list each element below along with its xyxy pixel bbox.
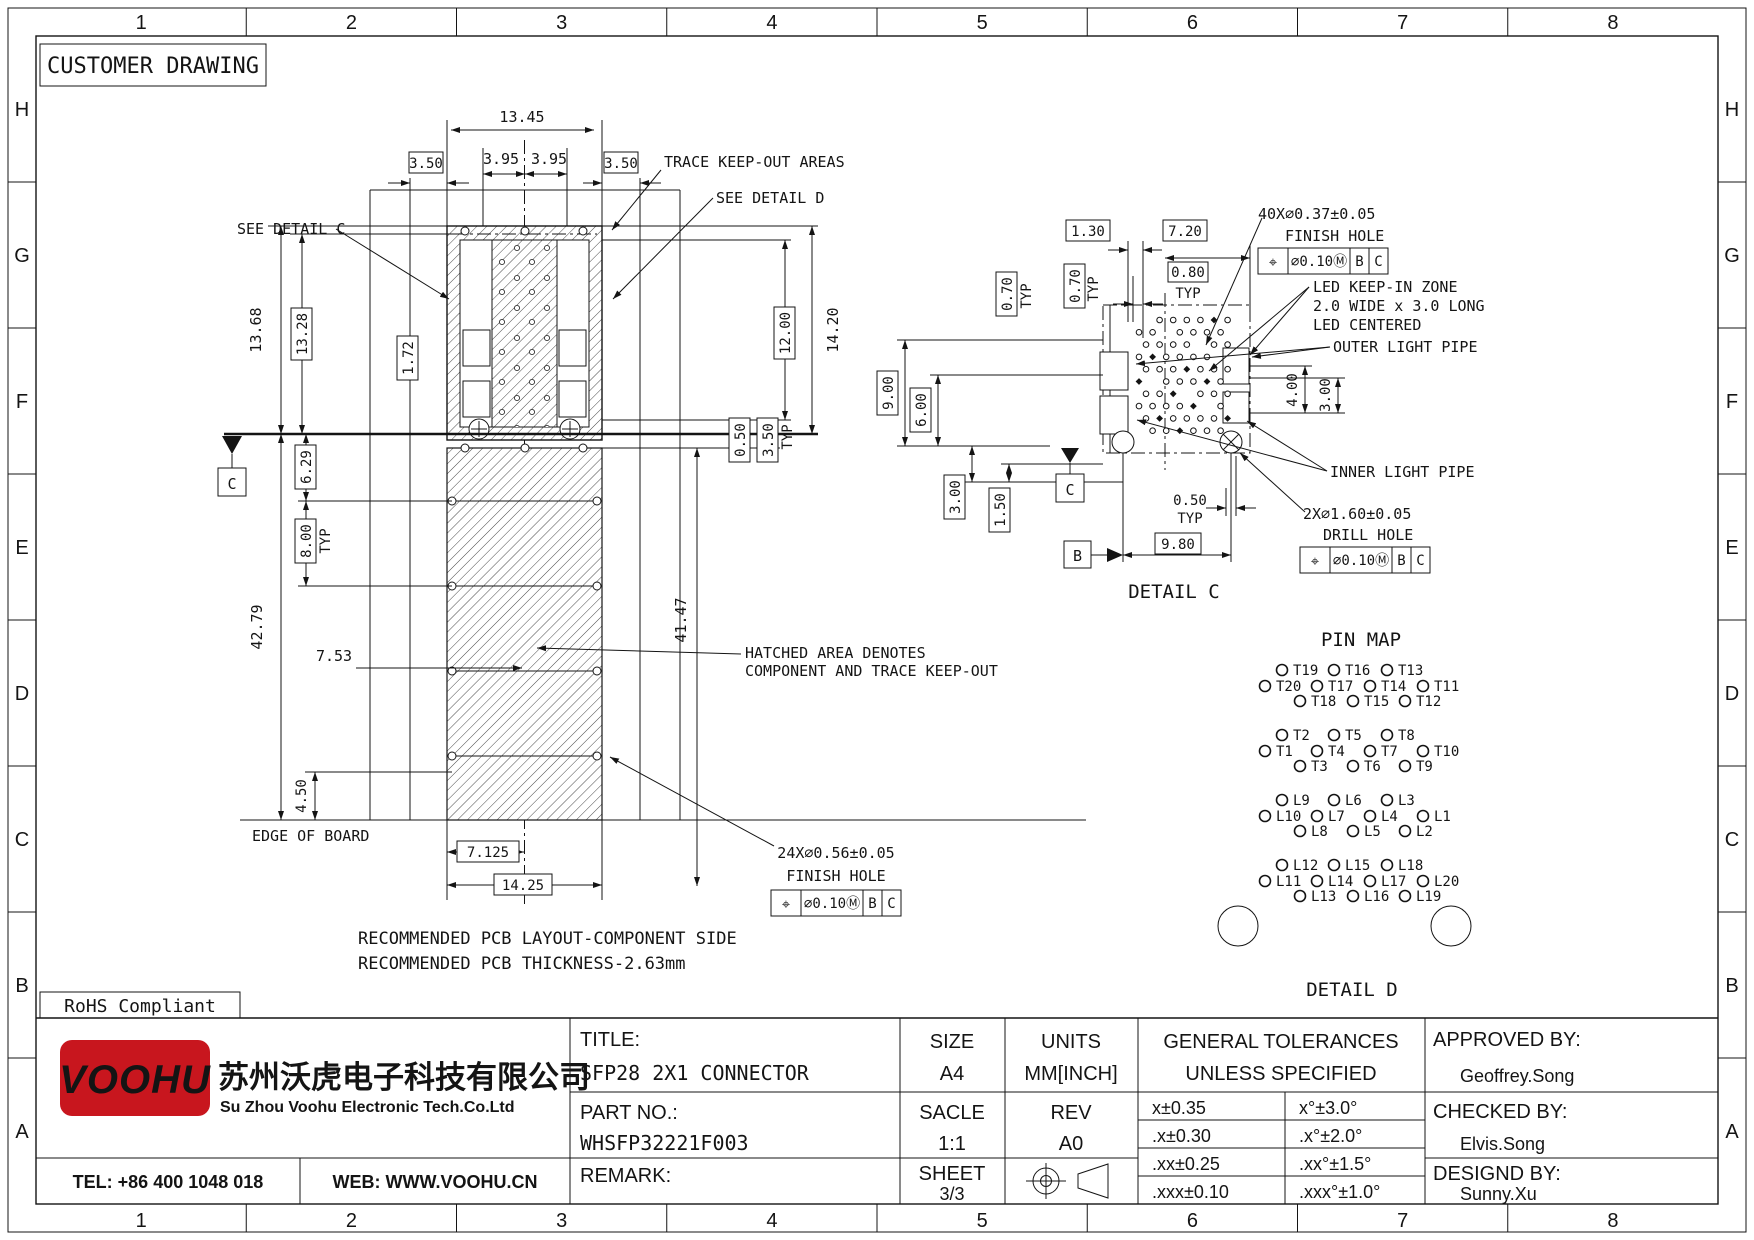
grid-col-label: 7 xyxy=(1397,12,1408,34)
pin-dot xyxy=(1177,403,1183,409)
grid-col-label: 8 xyxy=(1607,12,1618,34)
pin-dot xyxy=(1225,391,1231,397)
pin-label: T5 xyxy=(1345,728,1362,744)
pin-label: T20 xyxy=(1276,679,1301,695)
pin-dot xyxy=(1163,403,1169,409)
pin-circle-icon xyxy=(1400,826,1411,837)
pin-circle-icon xyxy=(1329,795,1340,806)
pin-dot xyxy=(1177,379,1183,385)
svg-text:14.25: 14.25 xyxy=(502,878,544,894)
company-name-en: Su Zhou Voohu Electronic Tech.Co.Ltd xyxy=(220,1099,515,1116)
connector-footprint-top xyxy=(447,226,602,440)
svg-text:⌖: ⌖ xyxy=(782,895,791,913)
pin-dot xyxy=(1150,403,1156,409)
svg-text:40X∅0.37±0.05: 40X∅0.37±0.05 xyxy=(1258,205,1375,223)
pin-dot-field xyxy=(1136,317,1231,434)
svg-text:⌖: ⌖ xyxy=(1269,253,1278,271)
grid-row-label: G xyxy=(1724,245,1740,267)
dim-13-45: 13.45 xyxy=(451,108,594,130)
grid-col-label: 2 xyxy=(346,1210,357,1232)
fcf-40x: ⌖ ∅0.10Ⓜ B C xyxy=(1258,248,1388,274)
pin-circle-icon xyxy=(1295,761,1306,772)
pin-dot xyxy=(1198,391,1204,397)
pin-label: T15 xyxy=(1364,694,1389,710)
typ-label: TYP xyxy=(780,424,796,449)
svg-text:6.29: 6.29 xyxy=(299,450,315,484)
svg-text:C: C xyxy=(1416,553,1424,569)
svg-text:13.28: 13.28 xyxy=(295,313,311,355)
pin-dot xyxy=(1157,391,1163,397)
pin-dot xyxy=(1198,366,1204,372)
dim-13-28: 13.28 xyxy=(291,308,312,360)
pin-label: L3 xyxy=(1398,793,1415,809)
recommended-note-2: RECOMMENDED PCB THICKNESS-2.63mm xyxy=(358,954,686,974)
tol-ang-1: x°±3.0° xyxy=(1299,1098,1357,1118)
remark-label: REMARK: xyxy=(580,1165,671,1187)
svg-text:FINISH HOLE: FINISH HOLE xyxy=(1285,227,1384,245)
grid-row-label: E xyxy=(15,537,28,559)
svg-text:0.50: 0.50 xyxy=(733,423,749,457)
title-block: VOOHU 苏州沃虎电子科技有限公司 Su Zhou Voohu Electro… xyxy=(36,1018,1718,1204)
grid-row-label: F xyxy=(16,391,28,413)
rohs-stamp: RoHS Compliant xyxy=(40,992,240,1018)
rev-value: A0 xyxy=(1059,1133,1083,1155)
svg-text:TYP: TYP xyxy=(1175,286,1200,302)
finish-hole-icon xyxy=(593,497,601,505)
finish-hole-icon xyxy=(448,752,456,760)
hatched-note-2: COMPONENT AND TRACE KEEP-OUT xyxy=(745,662,998,680)
svg-text:1.72: 1.72 xyxy=(401,341,417,375)
svg-text:DRILL HOLE: DRILL HOLE xyxy=(1323,526,1413,544)
dim-7-53: 7.53 xyxy=(316,647,352,665)
svg-text:4.00: 4.00 xyxy=(1285,373,1301,407)
sheet-label: SHEET xyxy=(919,1163,986,1185)
svg-text:∅0.10Ⓜ: ∅0.10Ⓜ xyxy=(1291,254,1347,270)
pin-map: PIN MAP T19T16T13T20T17T14T11T18T15T12T2… xyxy=(1218,629,1471,1001)
pin-dot xyxy=(1143,342,1149,348)
pin-dot xyxy=(1163,379,1169,385)
svg-text:2X∅1.60±0.05: 2X∅1.60±0.05 xyxy=(1303,505,1411,523)
approved-value: Geoffrey.Song xyxy=(1460,1066,1574,1086)
pin-dot xyxy=(1218,330,1224,336)
pin-dot xyxy=(1143,391,1149,397)
detail-d-hole-icon xyxy=(1431,906,1471,946)
svg-text:B: B xyxy=(868,896,876,912)
pin-label: L1 xyxy=(1434,809,1451,825)
finish-hole-icon xyxy=(579,227,587,235)
pin-circle-icon xyxy=(1400,696,1411,707)
pin-dot-filled xyxy=(1183,366,1190,373)
pin-label: L4 xyxy=(1381,809,1398,825)
pin-circle-icon xyxy=(1312,876,1323,887)
pin-circle-icon xyxy=(1418,681,1429,692)
grid-col-label: 2 xyxy=(346,12,357,34)
svg-text:B: B xyxy=(1073,547,1082,565)
pin-circle-icon xyxy=(1260,811,1271,822)
grid-row-label: D xyxy=(15,683,29,705)
pin-dot xyxy=(1177,330,1183,336)
tolerances-header-2: UNLESS SPECIFIED xyxy=(1185,1063,1376,1085)
pin-dot xyxy=(1157,366,1163,372)
svg-text:LED CENTERED: LED CENTERED xyxy=(1313,316,1421,334)
finish-hole-icon xyxy=(593,582,601,590)
pin-circle-icon xyxy=(1365,746,1376,757)
pin-dot xyxy=(1198,416,1204,422)
svg-text:3.00: 3.00 xyxy=(1318,378,1334,412)
pin-circle-icon xyxy=(1329,860,1340,871)
dim-14-20: 14.20 xyxy=(824,307,842,352)
svg-text:7.20: 7.20 xyxy=(1168,224,1202,240)
dc-datum-b-dim-9-80: 9.80 B xyxy=(1064,453,1231,568)
pin-label: T3 xyxy=(1311,759,1328,775)
rev-label: REV xyxy=(1050,1102,1092,1124)
svg-text:⌖: ⌖ xyxy=(1311,552,1320,570)
tol-ang-4: .xxx°±1.0° xyxy=(1299,1182,1380,1202)
svg-text:3.95: 3.95 xyxy=(531,150,567,168)
pin-dot-filled xyxy=(1170,390,1177,397)
dc-dim-0-70-b: 0.70 xyxy=(1064,264,1085,308)
rohs-label: RoHS Compliant xyxy=(64,996,216,1017)
detail-c-view: 1.30 7.20 0.80 TYP 0.70 TYP 0.70 xyxy=(877,205,1485,603)
company-name-cn: 苏州沃虎电子科技有限公司 xyxy=(218,1060,590,1095)
pin-dot-filled xyxy=(1204,378,1211,385)
dc-dim-9-00: 9.00 xyxy=(877,371,898,415)
tol-ang-3: .xx°±1.5° xyxy=(1299,1154,1371,1174)
dc-datum-c-flag: C xyxy=(1056,448,1084,502)
grid-row-label: D xyxy=(1725,683,1739,705)
grid-col-label: 4 xyxy=(766,1210,777,1232)
pin-label: L10 xyxy=(1276,809,1301,825)
grid-col-label: 5 xyxy=(977,1210,988,1232)
pin-label: L2 xyxy=(1416,824,1433,840)
part-no-value: WHSFP32221F003 xyxy=(580,1131,749,1155)
pin-dot xyxy=(1184,342,1190,348)
tol-lin-3: .xx±0.25 xyxy=(1152,1154,1220,1174)
pin-label: T1 xyxy=(1276,744,1293,760)
pin-dot xyxy=(1143,366,1149,372)
dim-7-125: 7.125 xyxy=(457,841,519,862)
pin-circle-icon xyxy=(1382,730,1393,741)
svg-text:∅0.10Ⓜ: ∅0.10Ⓜ xyxy=(1333,553,1389,569)
dim-4-50: 4.50 xyxy=(294,779,310,813)
pin-label: T17 xyxy=(1328,679,1353,695)
dim-42-79: 42.79 xyxy=(248,604,266,649)
pin-label: L6 xyxy=(1345,793,1362,809)
pin-label: L14 xyxy=(1328,874,1353,890)
pin-dot-filled xyxy=(1149,354,1156,361)
pin-dot xyxy=(1163,354,1169,360)
dc-dim-4-00: 4.00 3.00 xyxy=(1249,366,1345,413)
dim-41-47: 41.47 xyxy=(672,597,690,642)
typ-label: TYP xyxy=(1086,276,1102,301)
approved-label: APPROVED BY: xyxy=(1433,1029,1581,1051)
svg-text:TYP: TYP xyxy=(1177,511,1202,527)
pin-dot xyxy=(1211,416,1217,422)
svg-text:6.00: 6.00 xyxy=(914,393,930,427)
pin-dot xyxy=(1157,342,1163,348)
inner-light-pipe-note: INNER LIGHT PIPE xyxy=(1137,420,1475,481)
hatched-note-1: HATCHED AREA DENOTES xyxy=(745,644,926,662)
pin-dot xyxy=(1136,330,1142,336)
grid-col-label: 1 xyxy=(136,12,147,34)
pin-label: T18 xyxy=(1311,694,1336,710)
designed-label: DESIGND BY: xyxy=(1433,1163,1561,1185)
tol-lin-2: .x±0.30 xyxy=(1152,1126,1211,1146)
dc-dim-6-00: 6.00 xyxy=(910,388,931,432)
logo-wordmark: VOOHU xyxy=(59,1058,211,1102)
pin-dot xyxy=(1150,428,1156,434)
pin-circle-icon xyxy=(1400,891,1411,902)
pin-dot xyxy=(1225,366,1231,372)
pin-dot xyxy=(1191,428,1197,434)
dim-6-29: 6.29 xyxy=(295,445,316,489)
fcf-24x: ⌖ ∅0.10Ⓜ B C xyxy=(771,890,901,916)
see-detail-c-note: SEE DETAIL C xyxy=(237,220,345,238)
tol-lin-4: .xxx±0.10 xyxy=(1152,1182,1229,1202)
grid-row-label: H xyxy=(1725,99,1739,121)
pin-circle-icon xyxy=(1260,681,1271,692)
part-no-label: PART NO.: xyxy=(580,1102,678,1124)
pin-circle-icon xyxy=(1260,876,1271,887)
scale-label: SACLE xyxy=(919,1102,985,1124)
detail-d-hole-icon xyxy=(1218,906,1258,946)
dim-8-00: 8.00 xyxy=(295,519,316,563)
dc-dim-0-70-a: 0.70 xyxy=(996,272,1017,316)
title-label: TITLE: xyxy=(580,1029,640,1051)
pin-circle-icon xyxy=(1382,860,1393,871)
svg-text:3.50: 3.50 xyxy=(604,156,638,172)
company-tel: TEL: +86 400 1048 018 xyxy=(73,1172,264,1192)
dim-14-25: 14.25 xyxy=(494,874,552,895)
svg-text:8.00: 8.00 xyxy=(299,524,315,558)
grid-row-label: E xyxy=(1725,537,1738,559)
svg-text:3.50: 3.50 xyxy=(761,423,777,457)
company-web: WEB: WWW.VOOHU.CN xyxy=(333,1172,538,1192)
svg-text:1.50: 1.50 xyxy=(993,493,1009,527)
pin-dot xyxy=(1184,317,1190,323)
pin-circle-icon xyxy=(1348,891,1359,902)
grid-row-label: F xyxy=(1726,391,1738,413)
pin-circle-icon xyxy=(1365,681,1376,692)
pin-label: L8 xyxy=(1311,824,1328,840)
grid-col-label: 4 xyxy=(766,12,777,34)
mount-hole-icon xyxy=(469,419,489,439)
pin-circle-icon xyxy=(1277,860,1288,871)
pin-label: T14 xyxy=(1381,679,1406,695)
pin-circle-icon xyxy=(1295,826,1306,837)
pin-label: T2 xyxy=(1293,728,1310,744)
pin-dot xyxy=(1225,317,1231,323)
pin-label: T7 xyxy=(1381,744,1398,760)
pin-circle-icon xyxy=(1382,795,1393,806)
third-angle-projection-icon xyxy=(1026,1163,1108,1199)
size-label: SIZE xyxy=(930,1031,974,1053)
pin-map-pins: T19T16T13T20T17T14T11T18T15T12T2T5T8T1T4… xyxy=(1260,663,1460,905)
grid-col-label: 1 xyxy=(136,1210,147,1232)
dim-3-50-typ: 3.50 xyxy=(757,418,778,462)
svg-text:3.00: 3.00 xyxy=(948,480,964,514)
dim-13-68: 13.68 xyxy=(247,307,265,352)
grid-col-label: 6 xyxy=(1187,12,1198,34)
grid-row-label: A xyxy=(1725,1121,1739,1143)
pin-dot xyxy=(1191,330,1197,336)
svg-text:B: B xyxy=(1397,553,1405,569)
pin-circle-icon xyxy=(1348,826,1359,837)
pin-circle-icon xyxy=(1418,811,1429,822)
pin-circle-icon xyxy=(1382,665,1393,676)
recommended-note-1: RECOMMENDED PCB LAYOUT-COMPONENT SIDE xyxy=(358,929,737,949)
svg-text:2.0 WIDE x 3.0 LONG: 2.0 WIDE x 3.0 LONG xyxy=(1313,297,1485,315)
svg-text:0.70: 0.70 xyxy=(1068,269,1084,303)
pin-circle-icon xyxy=(1348,761,1359,772)
grid-col-label: 7 xyxy=(1397,1210,1408,1232)
pin-dot xyxy=(1184,416,1190,422)
pin-label: T16 xyxy=(1345,663,1370,679)
svg-text:C: C xyxy=(1374,254,1382,270)
pin-circle-icon xyxy=(1295,891,1306,902)
pin-dot xyxy=(1170,366,1176,372)
units-label: UNITS xyxy=(1041,1031,1101,1053)
finish-hole-icon xyxy=(593,752,601,760)
pin-dot xyxy=(1218,403,1224,409)
customer-drawing-stamp: CUSTOMER DRAWING xyxy=(40,44,266,86)
svg-text:9.00: 9.00 xyxy=(881,376,897,410)
svg-text:INNER LIGHT PIPE: INNER LIGHT PIPE xyxy=(1330,463,1475,481)
pin-circle-icon xyxy=(1312,811,1323,822)
finish-hole-icon xyxy=(521,444,529,452)
size-value: A4 xyxy=(940,1063,964,1085)
pin-circle-icon xyxy=(1277,795,1288,806)
pin-dot xyxy=(1170,342,1176,348)
pin-label: T13 xyxy=(1398,663,1423,679)
typ-label: TYP xyxy=(1019,283,1035,308)
pin-dot xyxy=(1211,342,1217,348)
finish-hole-callout-24x: 24X∅0.56±0.05 FINISH HOLE ⌖ ∅0.10Ⓜ B C xyxy=(610,757,901,916)
finish-hole-icon xyxy=(461,444,469,452)
scale-value: 1:1 xyxy=(938,1133,966,1155)
datum-c-label: C xyxy=(227,475,236,493)
pin-circle-icon xyxy=(1277,665,1288,676)
edge-of-board-label: EDGE OF BOARD xyxy=(252,827,369,845)
pin-label: L15 xyxy=(1345,858,1370,874)
grid-col-label: 6 xyxy=(1187,1210,1198,1232)
pin-label: L5 xyxy=(1364,824,1381,840)
pin-dot xyxy=(1170,317,1176,323)
pin-label: L13 xyxy=(1311,889,1336,905)
pin-dot xyxy=(1204,428,1210,434)
finish-hole-icon xyxy=(521,227,529,235)
detail-c-title: DETAIL C xyxy=(1128,581,1220,603)
pin-label: L18 xyxy=(1398,858,1423,874)
pin-label: T4 xyxy=(1328,744,1345,760)
pin-dot xyxy=(1211,391,1217,397)
pin-dot xyxy=(1157,317,1163,323)
grid-row-label: B xyxy=(15,975,28,997)
dim-1-72: 1.72 xyxy=(397,336,418,380)
detail-d-title: DETAIL D xyxy=(1306,979,1398,1001)
pin-circle-icon xyxy=(1329,665,1340,676)
pin-dot xyxy=(1136,403,1142,409)
see-detail-d-note: SEE DETAIL D xyxy=(716,189,824,207)
pin-circle-icon xyxy=(1329,730,1340,741)
dc-dim-0-80: 0.80 TYP xyxy=(1113,262,1208,322)
pin-map-title: PIN MAP xyxy=(1321,629,1401,651)
grid-col-label: 3 xyxy=(556,12,567,34)
pin-label: T10 xyxy=(1434,744,1459,760)
svg-text:0.50: 0.50 xyxy=(1173,493,1207,509)
svg-text:9.80: 9.80 xyxy=(1161,537,1195,553)
svg-text:∅0.10Ⓜ: ∅0.10Ⓜ xyxy=(804,896,860,912)
pin-dot-filled xyxy=(1190,403,1197,410)
svg-text:FINISH HOLE: FINISH HOLE xyxy=(786,867,885,885)
dim-3-50-left: 3.50 xyxy=(388,152,469,183)
pin-dot xyxy=(1218,379,1224,385)
pin-circle-icon xyxy=(1295,696,1306,707)
pin-dot xyxy=(1191,379,1197,385)
pin-dot xyxy=(1225,342,1231,348)
pin-circle-icon xyxy=(1418,746,1429,757)
pin-label: T8 xyxy=(1398,728,1415,744)
mount-hole-icon xyxy=(560,419,580,439)
company-logo: VOOHU xyxy=(59,1040,211,1116)
finish-hole-icon xyxy=(579,444,587,452)
title-value: SFP28 2X1 CONNECTOR xyxy=(580,1061,810,1085)
tol-lin-1: x±0.35 xyxy=(1152,1098,1206,1118)
svg-text:C: C xyxy=(1065,481,1074,499)
pin-dot xyxy=(1204,330,1210,336)
svg-text:1.30: 1.30 xyxy=(1071,224,1105,240)
typ-label: TYP xyxy=(318,528,334,553)
pin-circle-icon xyxy=(1348,696,1359,707)
svg-text:24X∅0.56±0.05: 24X∅0.56±0.05 xyxy=(777,844,894,862)
pin-dot xyxy=(1136,354,1142,360)
pin-label: L9 xyxy=(1293,793,1310,809)
svg-text:B: B xyxy=(1355,254,1363,270)
main-view: C EDGE OF BOARD 13.45 3.95 3.95 3.50 3.5… xyxy=(218,108,1086,974)
svg-text:13.45: 13.45 xyxy=(499,108,544,126)
svg-text:OUTER LIGHT PIPE: OUTER LIGHT PIPE xyxy=(1333,338,1478,356)
pin-label: L7 xyxy=(1328,809,1345,825)
svg-text:C: C xyxy=(887,896,895,912)
pin-label: L12 xyxy=(1293,858,1318,874)
pin-label: T9 xyxy=(1416,759,1433,775)
pin-circle-icon xyxy=(1400,761,1411,772)
pin-label: T11 xyxy=(1434,679,1459,695)
checked-value: Elvis.Song xyxy=(1460,1134,1545,1154)
svg-text:3.50: 3.50 xyxy=(409,156,443,172)
finish-hole-icon xyxy=(461,227,469,235)
trace-keepout-note: TRACE KEEP-OUT AREAS xyxy=(664,153,845,171)
pin-label: L19 xyxy=(1416,889,1441,905)
dim-12-00: 12.00 xyxy=(774,307,795,359)
pin-circle-icon xyxy=(1277,730,1288,741)
pin-circle-icon xyxy=(1365,811,1376,822)
grid-col-label: 5 xyxy=(977,12,988,34)
pin-circle-icon xyxy=(1312,681,1323,692)
svg-text:3.95: 3.95 xyxy=(483,150,519,168)
svg-text:7.125: 7.125 xyxy=(467,845,509,861)
svg-text:0.80: 0.80 xyxy=(1171,265,1205,281)
pin-dot xyxy=(1170,416,1176,422)
pin-dot xyxy=(1204,354,1210,360)
pin-circle-icon xyxy=(1260,746,1271,757)
pin-label: T19 xyxy=(1293,663,1318,679)
customer-drawing-label: CUSTOMER DRAWING xyxy=(47,54,259,79)
drawing-sheet: 1122334455667788HHGGFFEEDDCCBBAA CUSTOME… xyxy=(0,0,1754,1240)
dim-3-50-right: 3.50 xyxy=(583,152,661,183)
pin-circle-icon xyxy=(1312,746,1323,757)
pin-label: T6 xyxy=(1364,759,1381,775)
